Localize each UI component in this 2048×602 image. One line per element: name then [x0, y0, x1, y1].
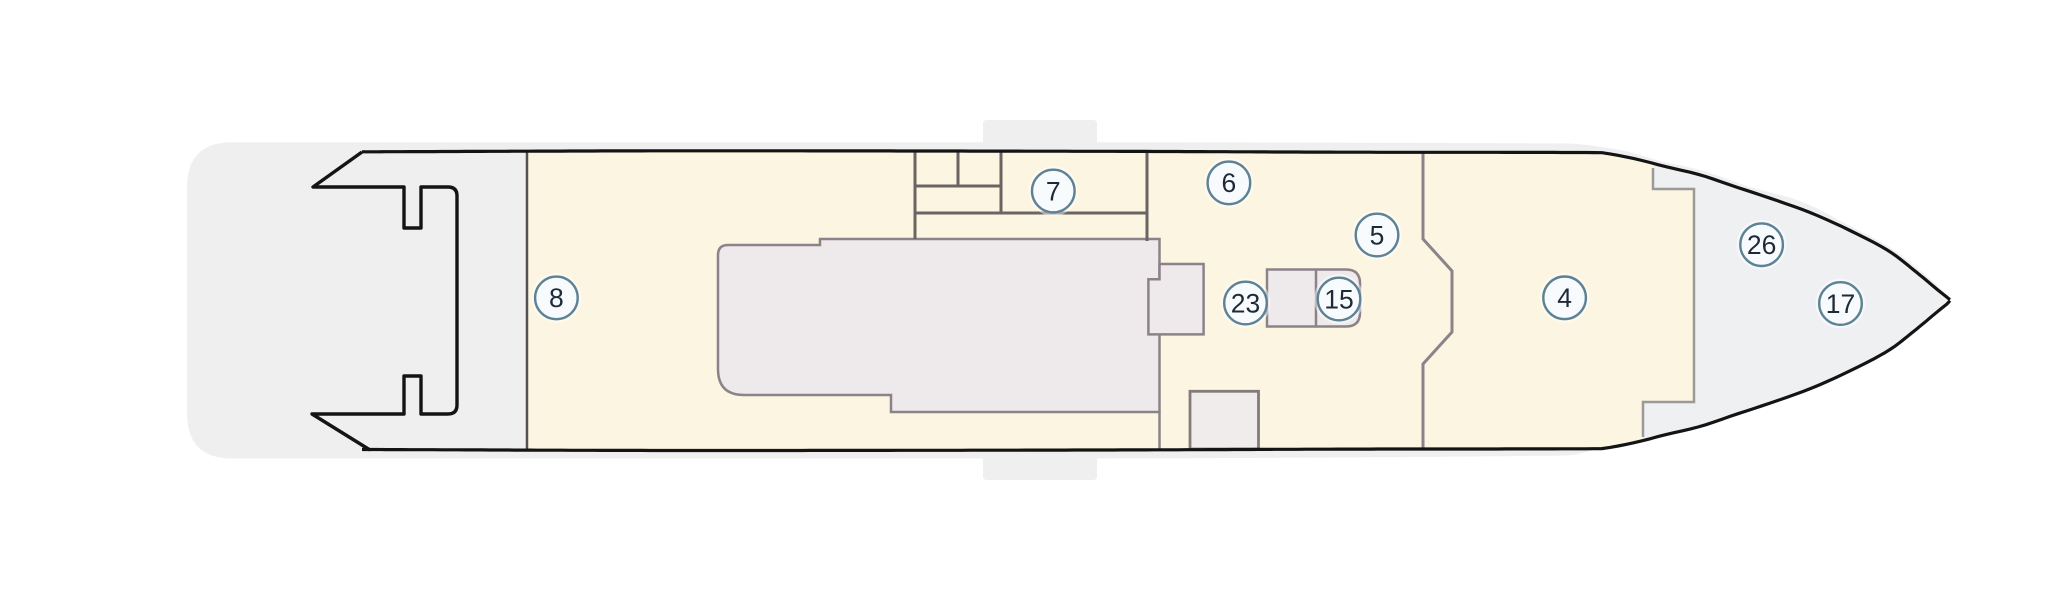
- svg-text:23: 23: [1231, 288, 1260, 318]
- svg-text:8: 8: [549, 283, 564, 313]
- svg-text:6: 6: [1222, 168, 1237, 198]
- svg-text:7: 7: [1046, 176, 1061, 206]
- svg-text:15: 15: [1324, 284, 1353, 314]
- svg-text:4: 4: [1557, 283, 1572, 313]
- svg-text:17: 17: [1826, 289, 1855, 319]
- svg-text:5: 5: [1370, 220, 1385, 250]
- svg-text:26: 26: [1747, 230, 1776, 260]
